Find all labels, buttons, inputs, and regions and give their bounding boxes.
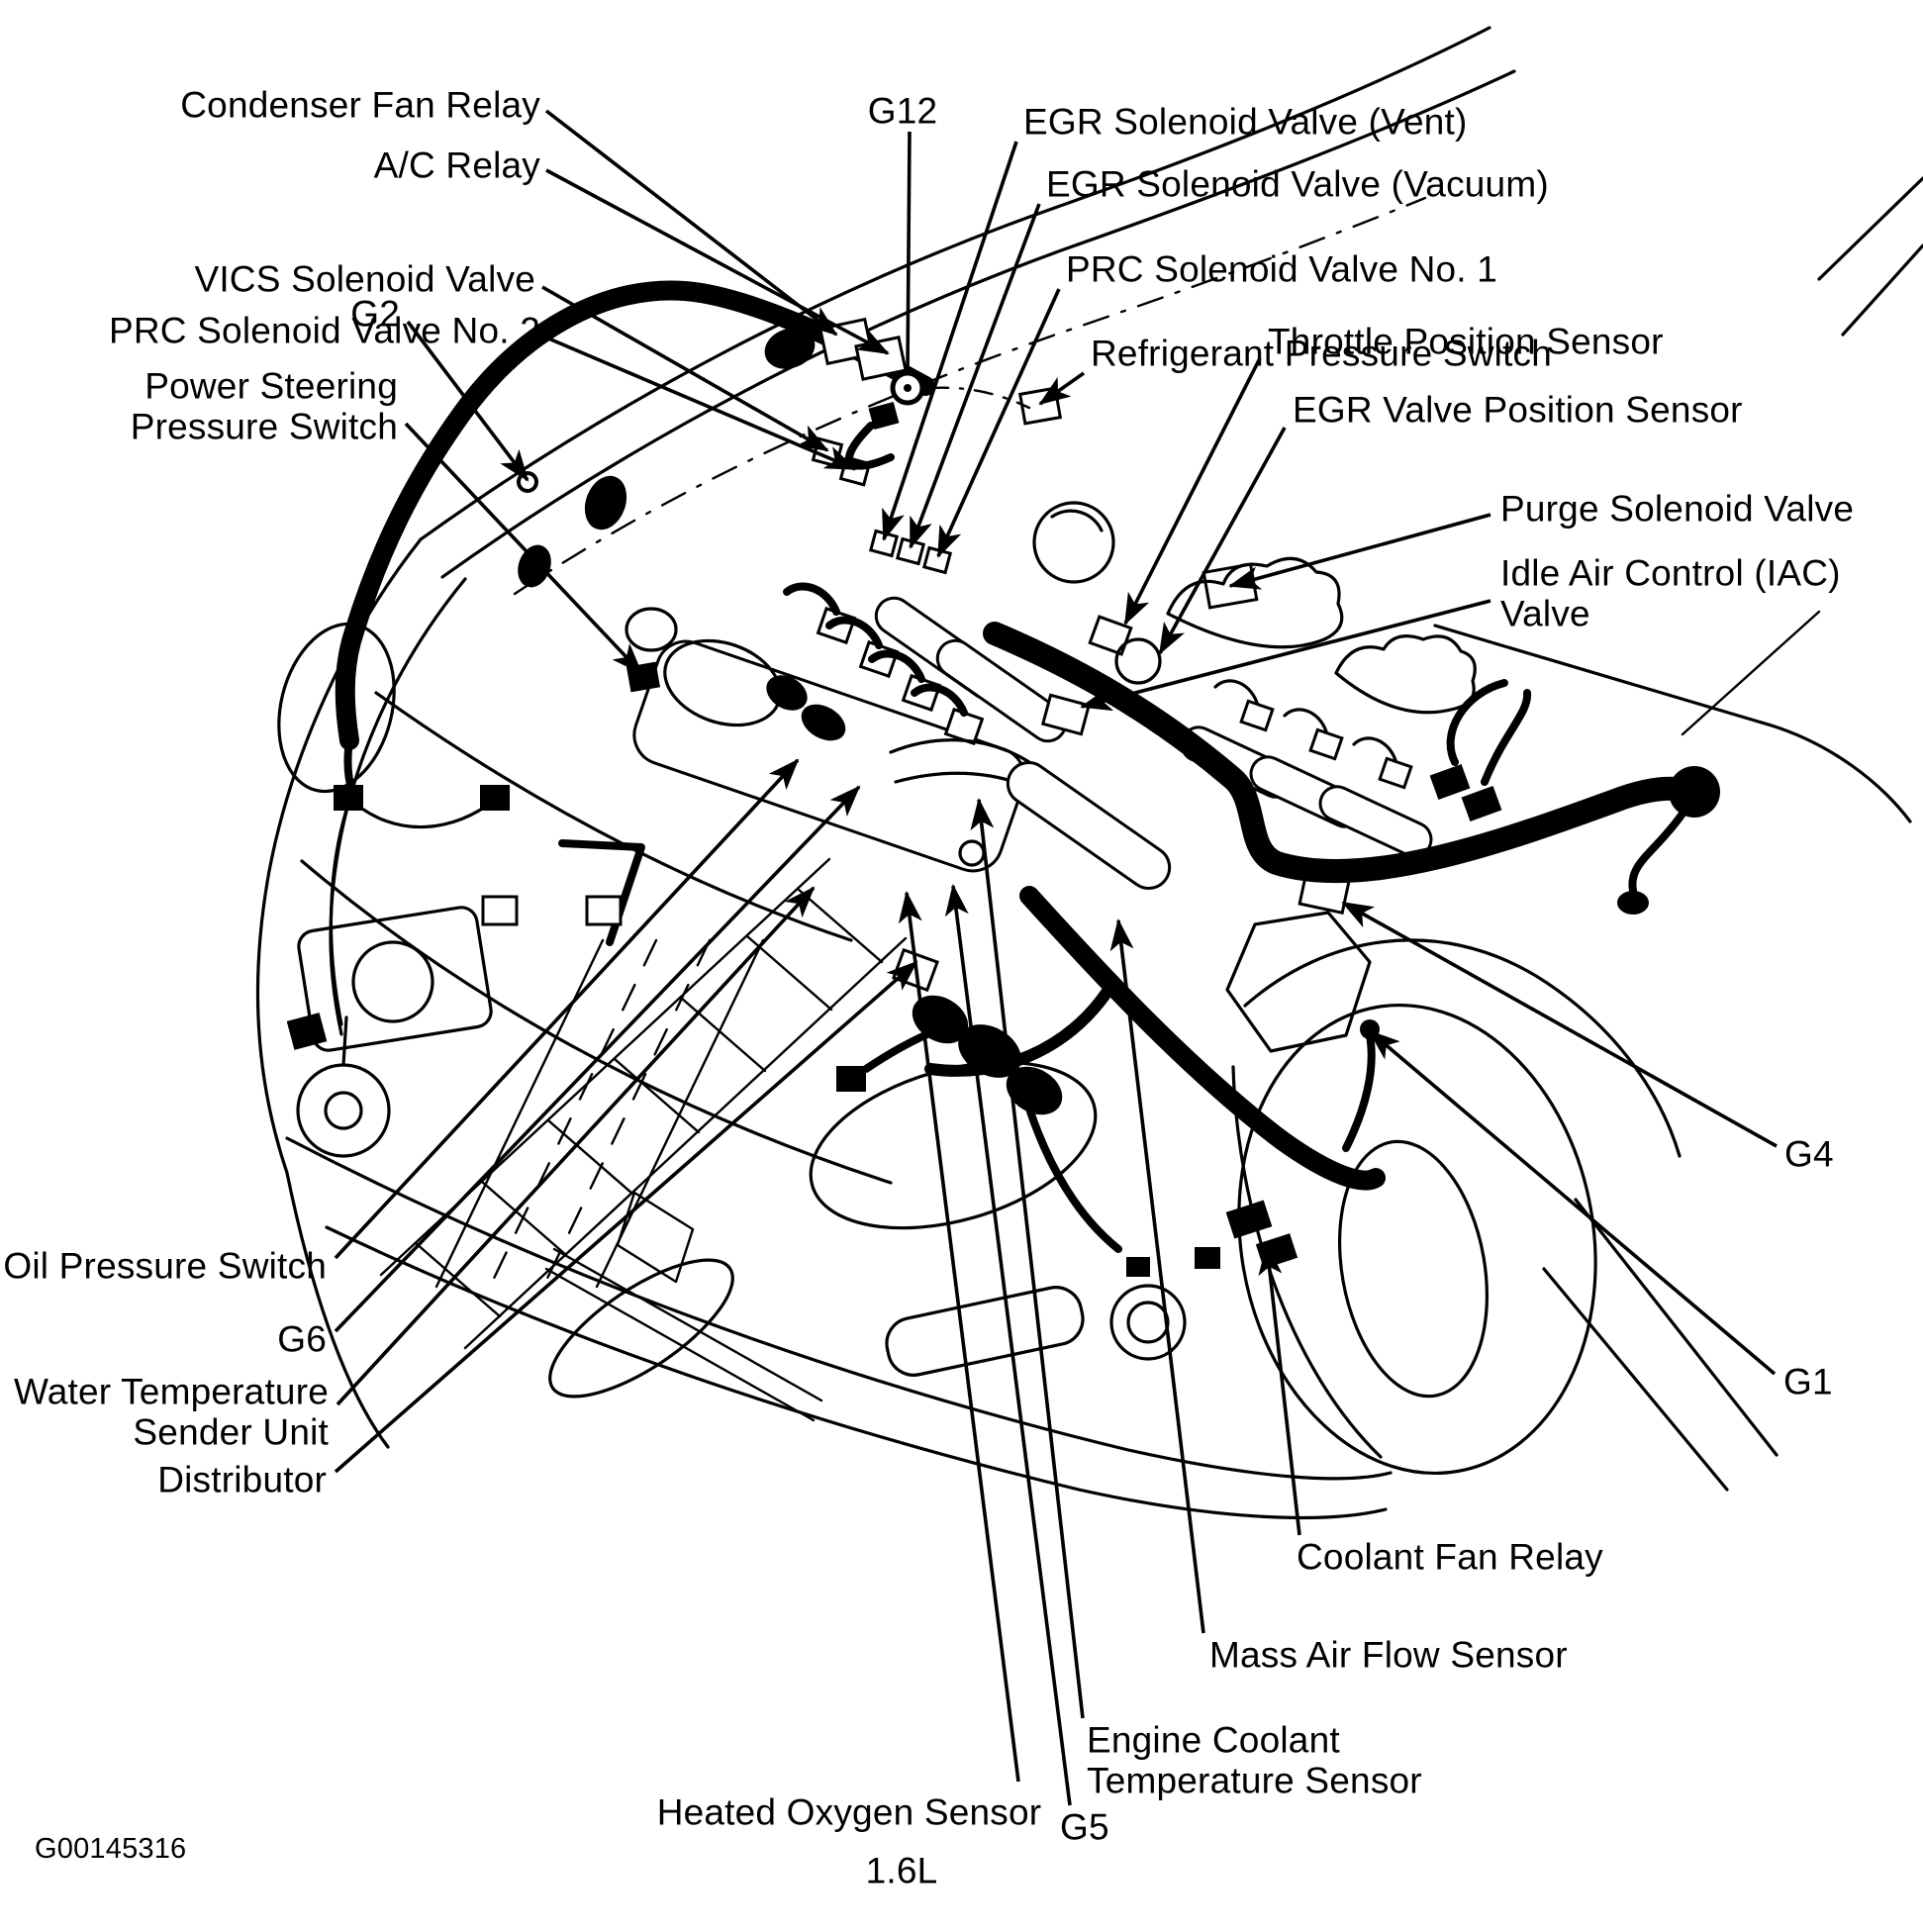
label-water-temperature-sender-unit: Water Temperature Sender Unit — [14, 1372, 329, 1454]
label-egr-solenoid-valve-vacuum: EGR Solenoid Valve (Vacuum) — [1046, 163, 1549, 204]
label-coolant-fan-relay: Coolant Fan Relay — [1297, 1536, 1603, 1577]
label-purge-solenoid-valve: Purge Solenoid Valve — [1500, 488, 1854, 529]
oil-cap — [626, 609, 676, 650]
leader-egr-valve-position-sensor — [1160, 428, 1285, 653]
engine — [483, 388, 1475, 1051]
leader-idle-air-control-valve — [1082, 601, 1490, 707]
brake-booster — [1034, 503, 1113, 582]
leader-g4 — [1343, 903, 1777, 1146]
label-g1: G1 — [1783, 1361, 1833, 1401]
label-heated-oxygen-sensor: Heated Oxygen Sensor — [657, 1791, 1042, 1832]
label-egr-valve-position-sensor: EGR Valve Position Sensor — [1293, 389, 1743, 430]
label-g4: G4 — [1784, 1133, 1834, 1174]
leader-ac-relay — [546, 170, 888, 353]
leader-purge-solenoid-valve — [1230, 515, 1490, 586]
horn — [298, 1065, 389, 1156]
coolant-fan-relay-part — [1226, 1201, 1298, 1269]
diagram-stage: Condenser Fan RelayA/C RelayVICS Solenoi… — [0, 0, 1923, 1932]
front-wheel — [1202, 977, 1631, 1502]
leader-power-steering-pressure-switch — [406, 424, 641, 673]
leader-oil-pressure-switch — [336, 760, 798, 1258]
leader-g12 — [908, 132, 910, 370]
label-g6: G6 — [277, 1318, 327, 1359]
hex-component — [1227, 913, 1370, 1051]
label-egr-solenoid-valve-vent: EGR Solenoid Valve (Vent) — [1023, 101, 1468, 142]
label-power-steering-pressure-switch: Power Steering Pressure Switch — [131, 366, 398, 448]
label-throttle-position-sensor: Throttle Position Sensor — [1268, 321, 1664, 361]
label-distributor: Distributor — [157, 1459, 327, 1499]
label-prc-solenoid-valve-2: PRC Solenoid Valve No. 2 — [109, 310, 540, 350]
leader-water-temperature-sender-unit — [337, 888, 814, 1404]
psps-part — [626, 662, 660, 693]
label-engine-coolant-temperature-sensor: Engine Coolant Temperature Sensor — [1087, 1720, 1422, 1802]
leader-g1 — [1370, 1031, 1775, 1374]
label-g5: G5 — [1060, 1806, 1109, 1847]
label-ac-relay: A/C Relay — [374, 145, 540, 185]
leader-g6 — [336, 787, 859, 1331]
leader-distributor — [336, 962, 916, 1472]
g2-ground-point — [519, 473, 536, 491]
leader-egr-solenoid-valve-vent — [884, 142, 1016, 539]
g12-ground-ring — [893, 373, 922, 403]
headlight — [297, 906, 494, 1053]
label-figure-code: G00145316 — [35, 1833, 186, 1865]
label-mass-air-flow-sensor: Mass Air Flow Sensor — [1209, 1634, 1568, 1675]
label-g12: G12 — [868, 90, 938, 131]
label-oil-pressure-switch: Oil Pressure Switch — [3, 1245, 327, 1286]
label-engine-size: 1.6L — [866, 1850, 938, 1890]
label-prc-solenoid-valve-1: PRC Solenoid Valve No. 1 — [1066, 248, 1497, 289]
label-condenser-fan-relay: Condenser Fan Relay — [180, 84, 540, 125]
label-idle-air-control-valve: Idle Air Control (IAC) Valve — [1500, 553, 1923, 635]
label-g2: G2 — [350, 293, 400, 334]
